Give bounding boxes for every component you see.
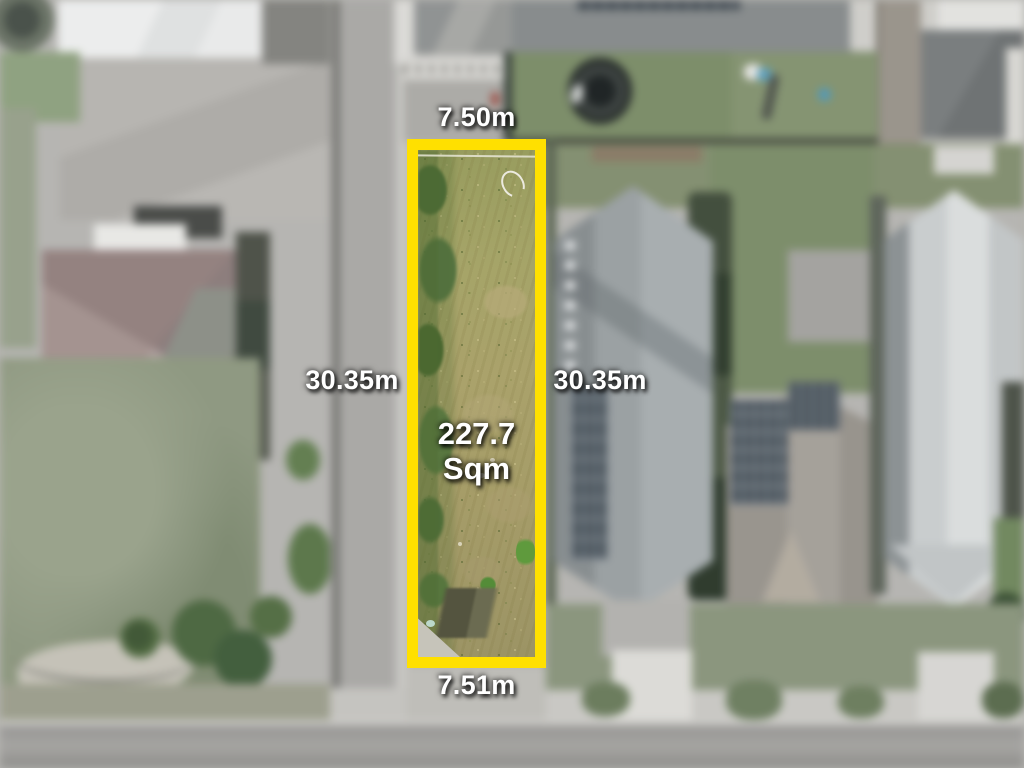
shed-roof-white xyxy=(58,0,265,58)
lot-area-unit: Sqm xyxy=(407,451,546,486)
lot-grass xyxy=(418,150,535,657)
concrete-yard-left xyxy=(60,48,338,220)
front-bush-b xyxy=(726,680,782,720)
bush-roadside-a xyxy=(288,524,332,594)
dimension-label-left: 30.35m xyxy=(302,365,402,396)
footpath-top-near-lot xyxy=(394,0,416,64)
front-bush-a xyxy=(582,682,630,716)
paving-white-small xyxy=(934,146,994,174)
tree-cluster-c xyxy=(250,596,292,638)
bush-roadside-b xyxy=(286,440,320,480)
bright-green-patch-a xyxy=(516,536,535,568)
tree-small-left xyxy=(120,618,160,658)
aerial-photo-lot-listing: 7.50m 30.35m 30.35m 7.51m 227.7 Sqm xyxy=(0,0,1024,768)
gap-shadow-strip xyxy=(870,196,886,594)
toy-blue-2 xyxy=(818,88,831,101)
house-a-skylight-column xyxy=(565,230,575,370)
fence-band-above-lot xyxy=(404,56,516,82)
driveway-white-house-b xyxy=(918,652,994,722)
dimension-label-top: 7.50m xyxy=(407,102,546,133)
house-mid-solar-a xyxy=(730,400,788,505)
right-edge-shadow xyxy=(1002,382,1024,522)
front-bush-c xyxy=(838,686,884,718)
garden-bed-brown xyxy=(592,146,702,162)
aqua-speck xyxy=(426,620,435,627)
tree-cluster-b xyxy=(214,630,272,688)
house-mid-solar-b xyxy=(788,382,840,430)
dark-paving-top xyxy=(262,0,338,64)
solar-panels-top xyxy=(576,0,740,10)
lot-area-value: 227.7 xyxy=(407,416,546,451)
white-corner-top-right xyxy=(938,0,1024,34)
junction-driveway xyxy=(330,688,406,722)
street-horizontal xyxy=(0,720,1024,768)
lot-path-diagonal-dark xyxy=(418,588,535,638)
mid-backyard-patio xyxy=(788,250,876,342)
fence-path-vertical xyxy=(876,0,921,144)
dimension-label-bottom: 7.51m xyxy=(407,670,546,701)
lawn-left-edge xyxy=(0,108,36,348)
path-far-right-edge xyxy=(1006,48,1024,144)
lot-boundary xyxy=(407,139,546,668)
white-speck-c xyxy=(458,542,462,546)
dimension-label-right: 30.35m xyxy=(550,365,650,396)
lot-grass-tan-patches xyxy=(418,150,535,657)
house-a-solar-panels xyxy=(571,388,607,560)
driveway-gray-house-a xyxy=(602,600,690,656)
front-bush-d xyxy=(982,682,1024,718)
lot-area-label: 227.7 Sqm xyxy=(407,416,546,486)
